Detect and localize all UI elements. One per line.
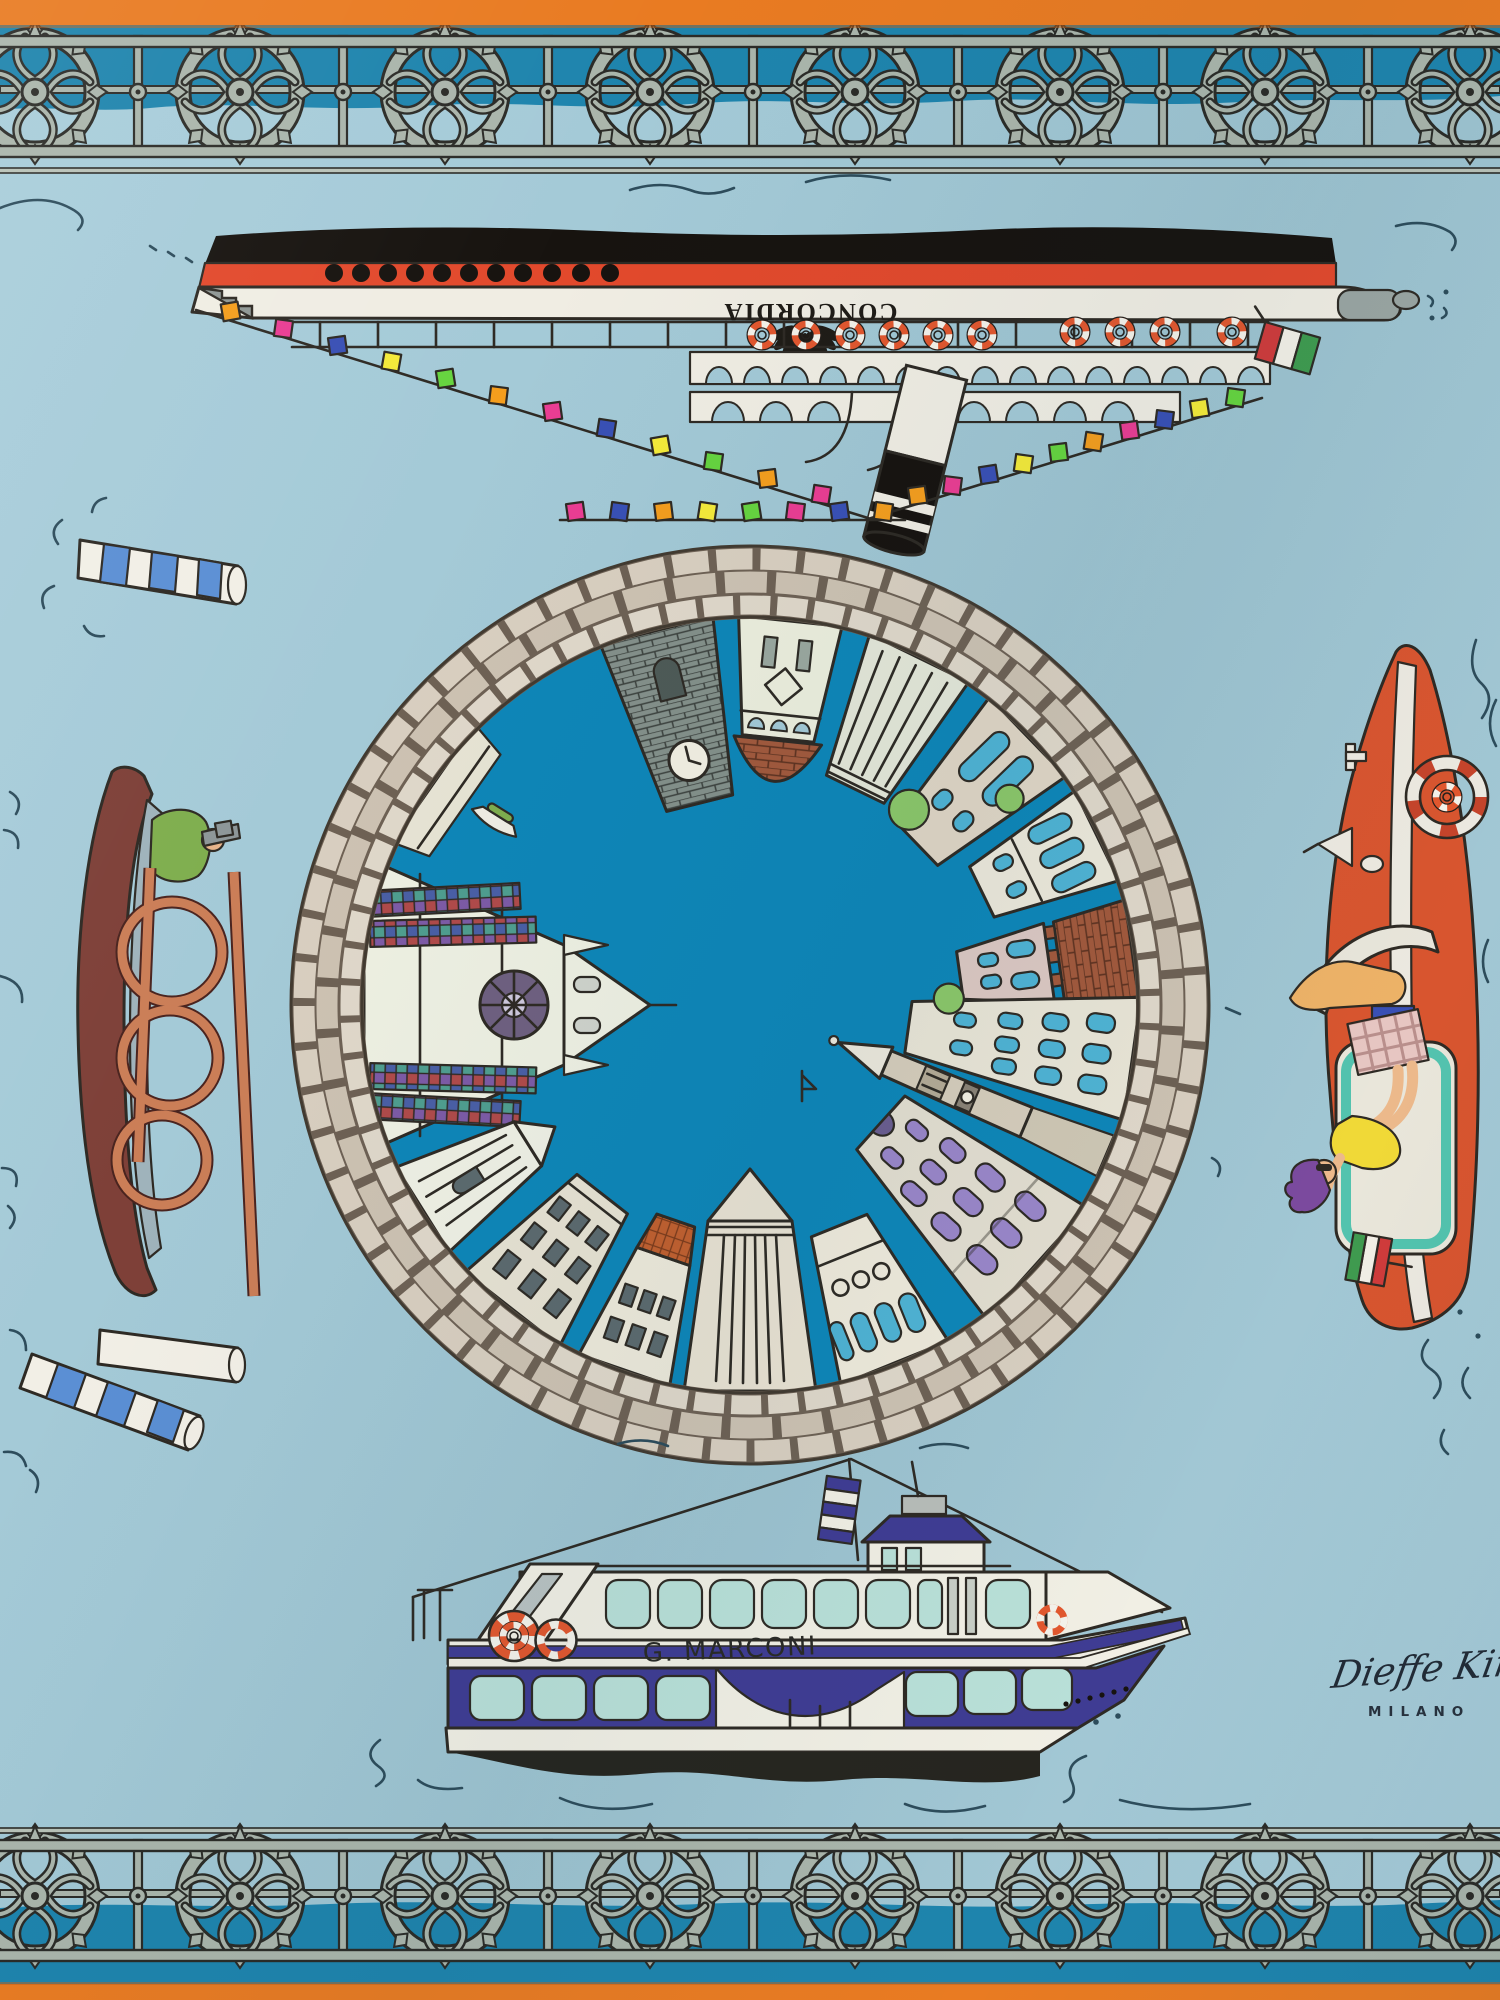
brand-signature: Dieffe Kinloch MILANO: [1327, 1635, 1500, 1720]
ferry-upper-cabin: [478, 1564, 1170, 1640]
ship-keel: [205, 227, 1336, 264]
ship-hanging-decks: [690, 352, 1270, 470]
railing-border-top: [0, 20, 1500, 173]
gondolier: [150, 810, 240, 882]
orange-border-bottom: [0, 1984, 1500, 2000]
cruise-ship-capsized: CONCORDIA: [192, 227, 1449, 559]
scarf-photo: CONCORDIA: [0, 0, 1500, 2000]
orange-border-top: [0, 0, 1500, 25]
ferry-mast-flag: [818, 1476, 861, 1544]
signature-city: MILANO: [1368, 1704, 1470, 1720]
vaporetto-ferry: G. MARCONI: [370, 1459, 1250, 1812]
mooring-pole-top-left: [42, 498, 246, 636]
gondola: [2, 767, 254, 1296]
balustrade-top: [0, 20, 1500, 173]
scarf-illustration: CONCORDIA: [0, 0, 1500, 2000]
venice-medallion: [291, 546, 1209, 1464]
balustrade-bottom: [0, 1824, 1500, 1968]
ship-stern: [1338, 290, 1449, 321]
ferry-keel: [448, 1752, 1040, 1782]
mooring-poles-bottom-left: [4, 1330, 245, 1492]
railing-border-bottom: [0, 1824, 1500, 1986]
signature-script: Dieffe Kinloch: [1327, 1635, 1500, 1698]
